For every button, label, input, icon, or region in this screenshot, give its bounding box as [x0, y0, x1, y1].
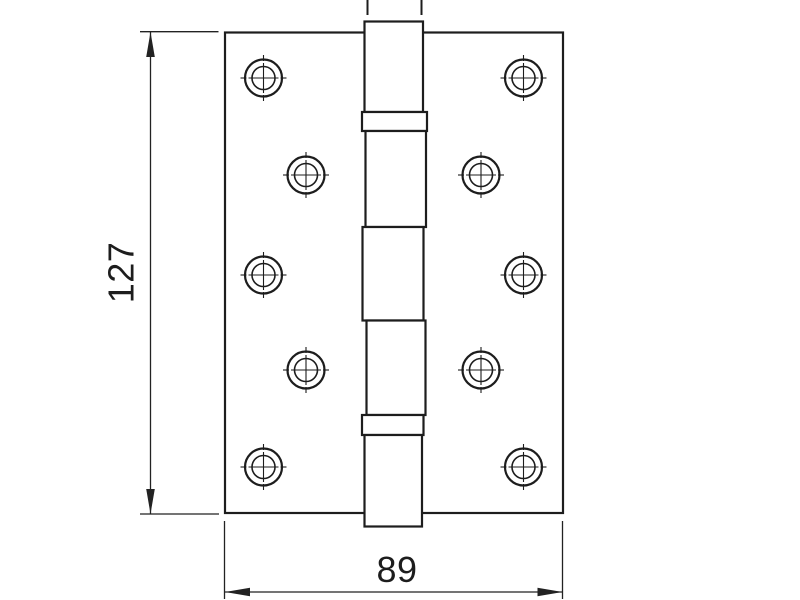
hinge-technical-drawing: 127 89 [0, 0, 800, 600]
barrel-knuckle-segment-3 [366, 131, 427, 227]
height-dimension-label: 127 [101, 242, 142, 304]
horizontal-arrowhead-2 [538, 588, 563, 597]
vertical-arrowhead-2 [146, 489, 155, 514]
barrel-knuckle-segment-7 [365, 435, 423, 527]
hinge-pin-stubs [368, 0, 422, 15]
vertical-dimension [140, 32, 219, 514]
width-dimension-label: 89 [376, 549, 417, 590]
barrel-knuckle-segment-4 [363, 227, 424, 321]
vertical-arrowhead-1 [146, 32, 155, 57]
barrel-knuckle-segment-2 [362, 112, 427, 131]
drawing-canvas: 127 89 [0, 0, 800, 600]
hinge-barrel [362, 22, 427, 527]
barrel-knuckle-segment-6 [362, 415, 424, 435]
barrel-knuckle-segment-5 [367, 321, 426, 416]
horizontal-arrowhead-1 [225, 588, 250, 597]
barrel-knuckle-segment-1 [365, 22, 424, 113]
